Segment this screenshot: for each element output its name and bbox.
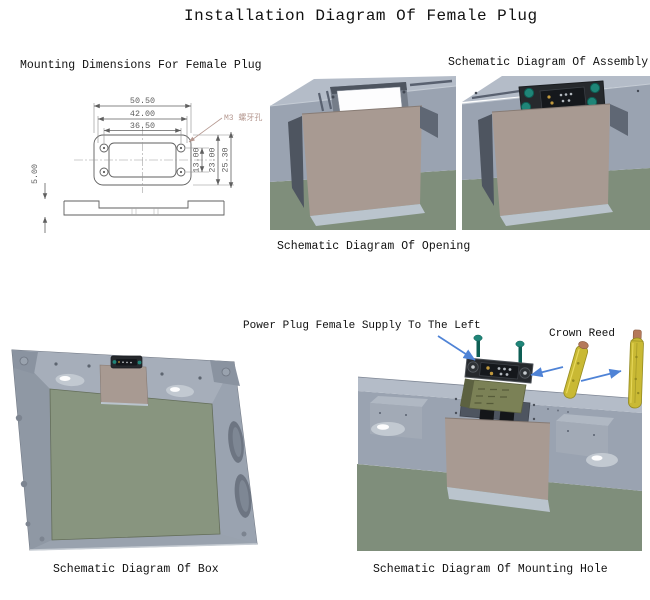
hole-note-label: M3 螺牙孔: [224, 112, 262, 123]
crown-reed-right: [628, 330, 644, 408]
hole-note-leader: [189, 118, 222, 142]
caption-box: Schematic Diagram Of Box: [53, 563, 219, 576]
caption-mounting-dimensions: Mounting Dimensions For Female Plug: [20, 59, 262, 72]
section-view: [64, 201, 224, 215]
dim-width-holes: 42.00: [130, 109, 155, 119]
page-title: Installation Diagram Of Female Plug: [184, 7, 538, 25]
dim-height-outer: 25.30: [221, 147, 231, 172]
opening-render: [270, 76, 456, 230]
blank-plate: [492, 104, 610, 216]
dim-height-mid: 23.00: [208, 147, 218, 172]
caption-mounting-hole: Schematic Diagram Of Mounting Hole: [373, 563, 608, 576]
box-render: [4, 334, 266, 560]
assembly-render: [462, 76, 650, 230]
arrow-to-reed-icon: [581, 371, 621, 381]
rail-hole-left: [475, 92, 478, 95]
caption-assembly: Schematic Diagram Of Assembly: [448, 56, 648, 69]
hole-note: M3 螺牙孔: [189, 112, 262, 142]
arrow-reed-to-plug-icon: [531, 367, 563, 375]
thumbscrew-left: [474, 335, 482, 341]
dim-height-inner: 13.00: [192, 147, 202, 172]
installation-diagram-page: Installation Diagram Of Female Plug Moun…: [0, 0, 650, 600]
blank-plate: [445, 418, 550, 500]
dim-width-outer: 50.50: [130, 96, 155, 106]
female-plug-connector: [460, 335, 533, 413]
dim-flange-thickness: 5.00: [30, 164, 40, 184]
caption-opening: Schematic Diagram Of Opening: [277, 240, 470, 253]
dimension-drawing: 50.50 42.00 36.50 13.00 23.00 25.30 5.00…: [28, 82, 260, 237]
crown-reed-left: [563, 340, 591, 400]
rail-hole-right: [637, 90, 639, 92]
dimension-texts: 50.50 42.00 36.50 13.00 23.00 25.30 5.00: [30, 96, 231, 184]
blank-plate: [302, 106, 422, 216]
rear-panel: [50, 389, 220, 540]
mounting-hole-render: [350, 323, 650, 555]
arrow-to-plug-icon: [438, 336, 475, 360]
dim-width-inner: 36.50: [130, 121, 155, 131]
thumbscrew-right: [516, 341, 524, 347]
